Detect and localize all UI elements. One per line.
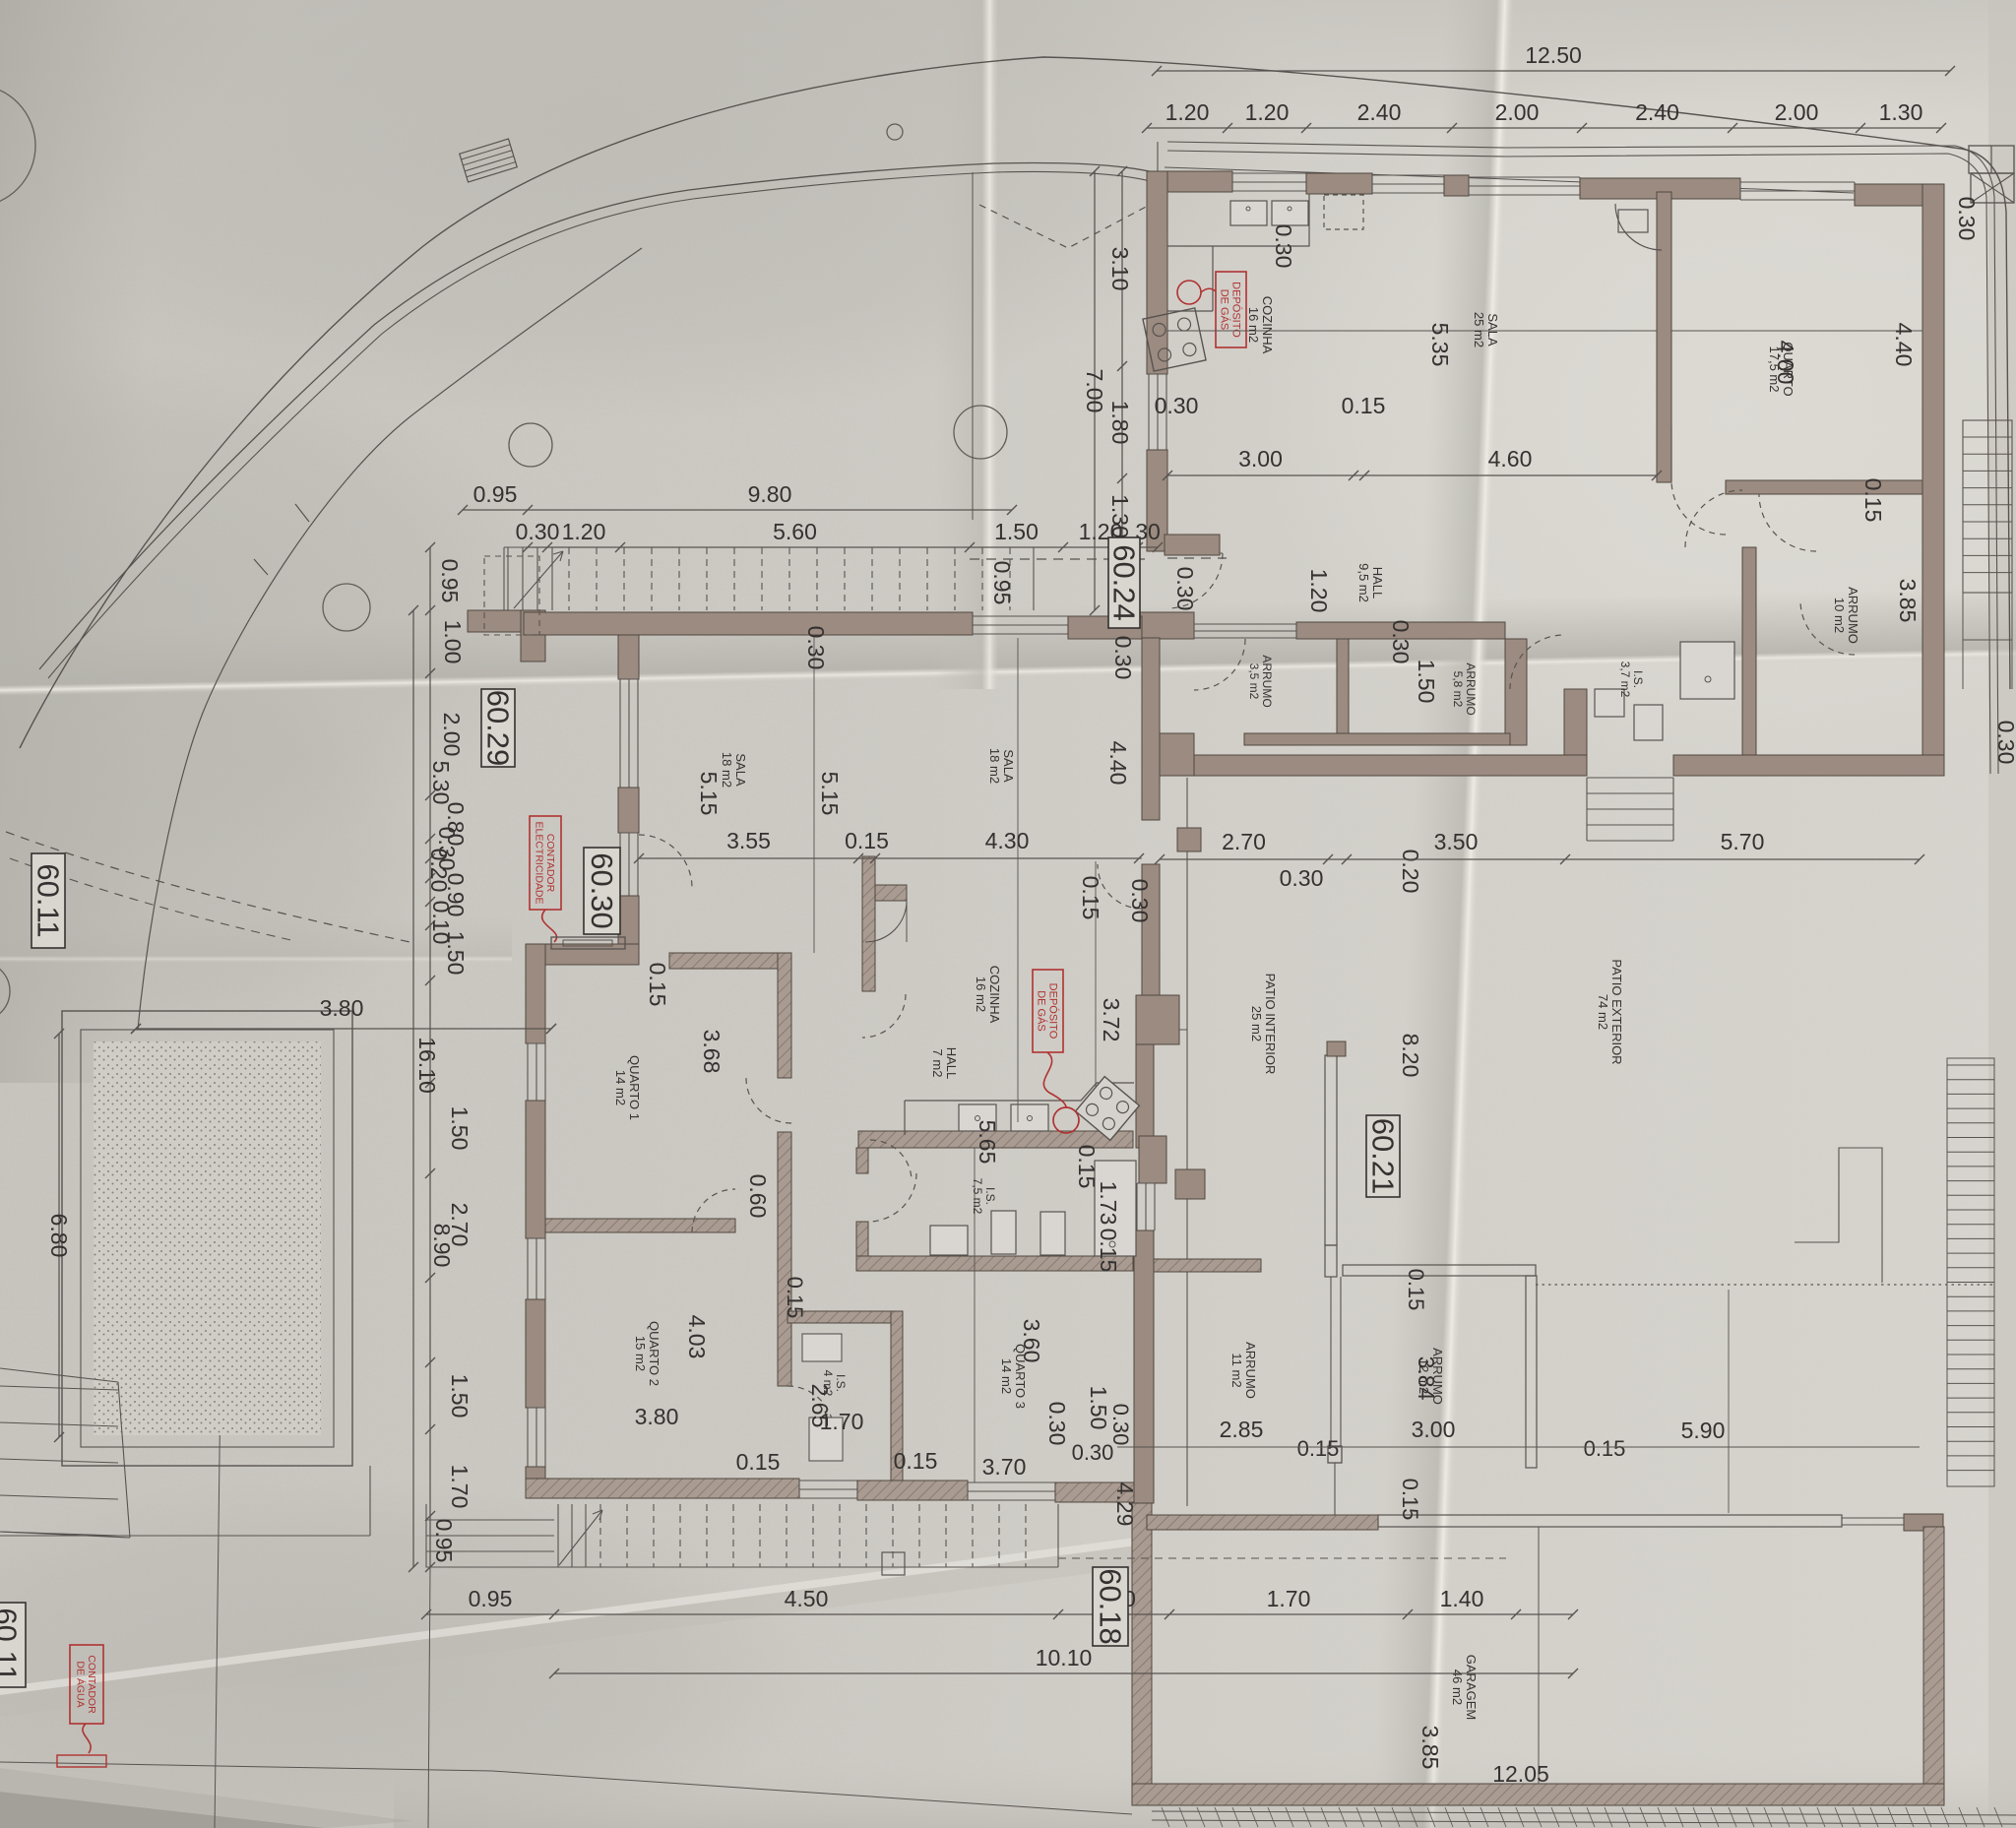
svg-text:0.15: 0.15 — [645, 963, 670, 1007]
svg-text:7.00: 7.00 — [1082, 369, 1107, 413]
svg-text:16.10: 16.10 — [414, 1037, 440, 1094]
svg-text:0.95: 0.95 — [989, 561, 1015, 605]
svg-text:5.30: 5.30 — [428, 761, 454, 805]
svg-text:10.10: 10.10 — [1036, 1645, 1093, 1670]
svg-text:4.50: 4.50 — [785, 1586, 829, 1611]
svg-text:4.29: 4.29 — [1112, 1482, 1138, 1527]
svg-text:3.68: 3.68 — [699, 1030, 724, 1074]
svg-text:3.55: 3.55 — [726, 828, 771, 853]
svg-text:1.50: 1.50 — [994, 519, 1039, 544]
svg-text:4.60: 4.60 — [1488, 446, 1533, 472]
svg-text:60.29: 60.29 — [481, 690, 516, 767]
svg-text:3.80: 3.80 — [320, 995, 364, 1021]
svg-text:5.60: 5.60 — [773, 519, 817, 544]
svg-text:1.30: 1.30 — [1879, 99, 1923, 125]
svg-text:DEPÓSITODE GÁS: DEPÓSITODE GÁS — [1219, 282, 1243, 338]
svg-text:CONTADORDE ÁGUA: CONTADORDE ÁGUA — [75, 1655, 98, 1714]
svg-text:60.30: 60.30 — [585, 852, 619, 929]
svg-text:1.70: 1.70 — [1267, 1586, 1311, 1611]
svg-text:3.72: 3.72 — [1099, 998, 1124, 1042]
svg-text:0.30: 0.30 — [1110, 636, 1136, 680]
svg-text:0.30: 0.30 — [1280, 865, 1324, 891]
svg-text:2.40: 2.40 — [1357, 99, 1402, 125]
svg-text:4.40: 4.40 — [1891, 323, 1917, 367]
svg-text:2.00: 2.00 — [1495, 99, 1540, 125]
svg-text:HALL7 m2: HALL7 m2 — [930, 1047, 959, 1080]
svg-text:3.85: 3.85 — [1417, 1726, 1443, 1770]
svg-text:2.00: 2.00 — [439, 713, 465, 757]
svg-text:5.90: 5.90 — [1681, 1418, 1726, 1443]
svg-text:0.30: 0.30 — [1388, 620, 1414, 664]
svg-text:3.70: 3.70 — [982, 1454, 1027, 1480]
svg-text:1.20: 1.20 — [562, 519, 606, 544]
svg-text:2.00: 2.00 — [1775, 99, 1819, 125]
svg-text:60.11: 60.11 — [31, 863, 66, 937]
svg-text:0.15: 0.15 — [1096, 1229, 1121, 1273]
svg-text:3.60: 3.60 — [1019, 1319, 1044, 1363]
svg-text:60.18: 60.18 — [1094, 1568, 1128, 1645]
svg-text:1.70: 1.70 — [447, 1465, 472, 1509]
svg-text:6.80: 6.80 — [46, 1214, 72, 1258]
svg-text:0.15: 0.15 — [1078, 876, 1103, 920]
svg-text:5.70: 5.70 — [1721, 829, 1765, 854]
svg-text:0.15: 0.15 — [736, 1449, 781, 1475]
svg-text:2.85: 2.85 — [1220, 1417, 1264, 1442]
svg-text:60.24: 60.24 — [1107, 544, 1142, 621]
svg-text:3.84: 3.84 — [1414, 1356, 1439, 1401]
svg-text:0.30: 0.30 — [1044, 1402, 1070, 1446]
svg-text:1.50: 1.50 — [1414, 660, 1439, 704]
svg-text:0.30: 0.30 — [1271, 224, 1296, 269]
svg-text:3.00: 3.00 — [1412, 1417, 1456, 1442]
svg-text:0.30: 0.30 — [1172, 567, 1198, 611]
svg-text:1.80: 1.80 — [1107, 401, 1133, 445]
svg-text:SALA18 m2: SALA18 m2 — [987, 748, 1016, 784]
svg-text:1.20: 1.20 — [1165, 99, 1210, 125]
svg-text:SALA18 m2: SALA18 m2 — [720, 752, 748, 788]
svg-text:0.15: 0.15 — [894, 1448, 938, 1474]
svg-text:0.15: 0.15 — [1860, 478, 1886, 523]
svg-text:0.15: 0.15 — [1297, 1436, 1340, 1461]
svg-text:1.50: 1.50 — [443, 931, 469, 976]
svg-text:2.40: 2.40 — [1635, 99, 1679, 125]
svg-text:0.15: 0.15 — [783, 1277, 807, 1319]
svg-text:5.15: 5.15 — [696, 772, 722, 816]
svg-text:4.40: 4.40 — [1105, 741, 1131, 786]
svg-text:12.05: 12.05 — [1492, 1761, 1549, 1787]
svg-text:DEPÓSITODE GÁS: DEPÓSITODE GÁS — [1036, 983, 1060, 1040]
svg-text:3.85: 3.85 — [1895, 579, 1921, 623]
svg-text:0.30: 0.30 — [1127, 879, 1153, 923]
svg-text:3.00: 3.00 — [1238, 446, 1283, 472]
svg-text:5.65: 5.65 — [975, 1120, 1000, 1165]
svg-text:1.20: 1.20 — [1306, 569, 1332, 613]
svg-text:1.20: 1.20 — [1245, 99, 1290, 125]
svg-text:12.50: 12.50 — [1525, 42, 1582, 68]
svg-text:2.70: 2.70 — [1222, 829, 1266, 854]
svg-text:8.20: 8.20 — [1398, 1034, 1423, 1078]
svg-text:0.15: 0.15 — [1342, 393, 1386, 418]
svg-text:1.50: 1.50 — [447, 1374, 472, 1418]
svg-text:60.11: 60.11 — [0, 1607, 24, 1681]
svg-text:60.21: 60.21 — [1366, 1118, 1401, 1195]
svg-text:5.15: 5.15 — [817, 772, 843, 816]
svg-text:0.95: 0.95 — [473, 481, 518, 507]
svg-text:0.95: 0.95 — [431, 1519, 457, 1563]
svg-text:0.30: 0.30 — [1108, 1404, 1133, 1446]
svg-text:0.15: 0.15 — [845, 828, 889, 853]
svg-text:1.00: 1.00 — [440, 620, 466, 664]
svg-text:HALL9,5 m2: HALL9,5 m2 — [1356, 563, 1385, 602]
svg-text:0.15: 0.15 — [1398, 1479, 1422, 1521]
svg-text:0.95: 0.95 — [437, 559, 463, 603]
svg-text:0.30: 0.30 — [1155, 393, 1199, 418]
svg-text:0.95: 0.95 — [469, 1586, 513, 1611]
svg-text:1.50: 1.50 — [1086, 1386, 1111, 1430]
svg-text:QUARTO17,5 m2: QUARTO17,5 m2 — [1767, 342, 1795, 396]
svg-text:0.30: 0.30 — [1954, 197, 1980, 241]
svg-text:4.30: 4.30 — [985, 828, 1030, 853]
svg-text:8.90: 8.90 — [429, 1224, 455, 1268]
svg-text:0.60: 0.60 — [745, 1174, 771, 1219]
svg-text:5.35: 5.35 — [1427, 323, 1453, 367]
svg-text:4.03: 4.03 — [684, 1315, 710, 1359]
svg-text:1.70: 1.70 — [820, 1409, 864, 1434]
svg-text:0.15: 0.15 — [1584, 1436, 1626, 1461]
svg-text:1.40: 1.40 — [1440, 1586, 1484, 1611]
svg-text:0.20: 0.20 — [1398, 850, 1423, 894]
svg-text:CONTADORELECTRICIDADE: CONTADORELECTRICIDADE — [534, 821, 557, 904]
svg-text:0.30: 0.30 — [516, 519, 560, 544]
svg-text:0.30: 0.30 — [803, 626, 829, 670]
svg-text:1.50: 1.50 — [447, 1106, 472, 1151]
svg-text:0.15: 0.15 — [1404, 1269, 1428, 1311]
svg-text:1.73: 1.73 — [1096, 1181, 1121, 1226]
svg-text:0.30: 0.30 — [1993, 721, 2016, 765]
svg-text:3.10: 3.10 — [1107, 247, 1133, 291]
svg-text:3.50: 3.50 — [1434, 829, 1479, 854]
svg-text:9.80: 9.80 — [748, 481, 792, 507]
svg-text:SALA25 m2: SALA25 m2 — [1472, 312, 1500, 347]
svg-text:3.80: 3.80 — [635, 1404, 679, 1429]
svg-text:0.30: 0.30 — [1072, 1440, 1114, 1465]
